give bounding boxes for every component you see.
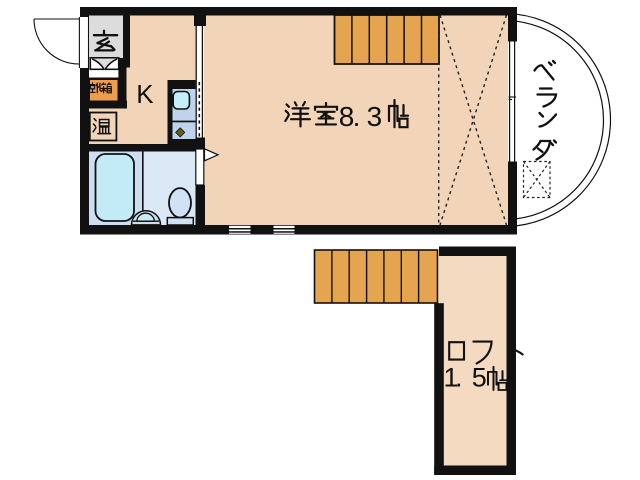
svg-text:K: K bbox=[136, 79, 154, 109]
